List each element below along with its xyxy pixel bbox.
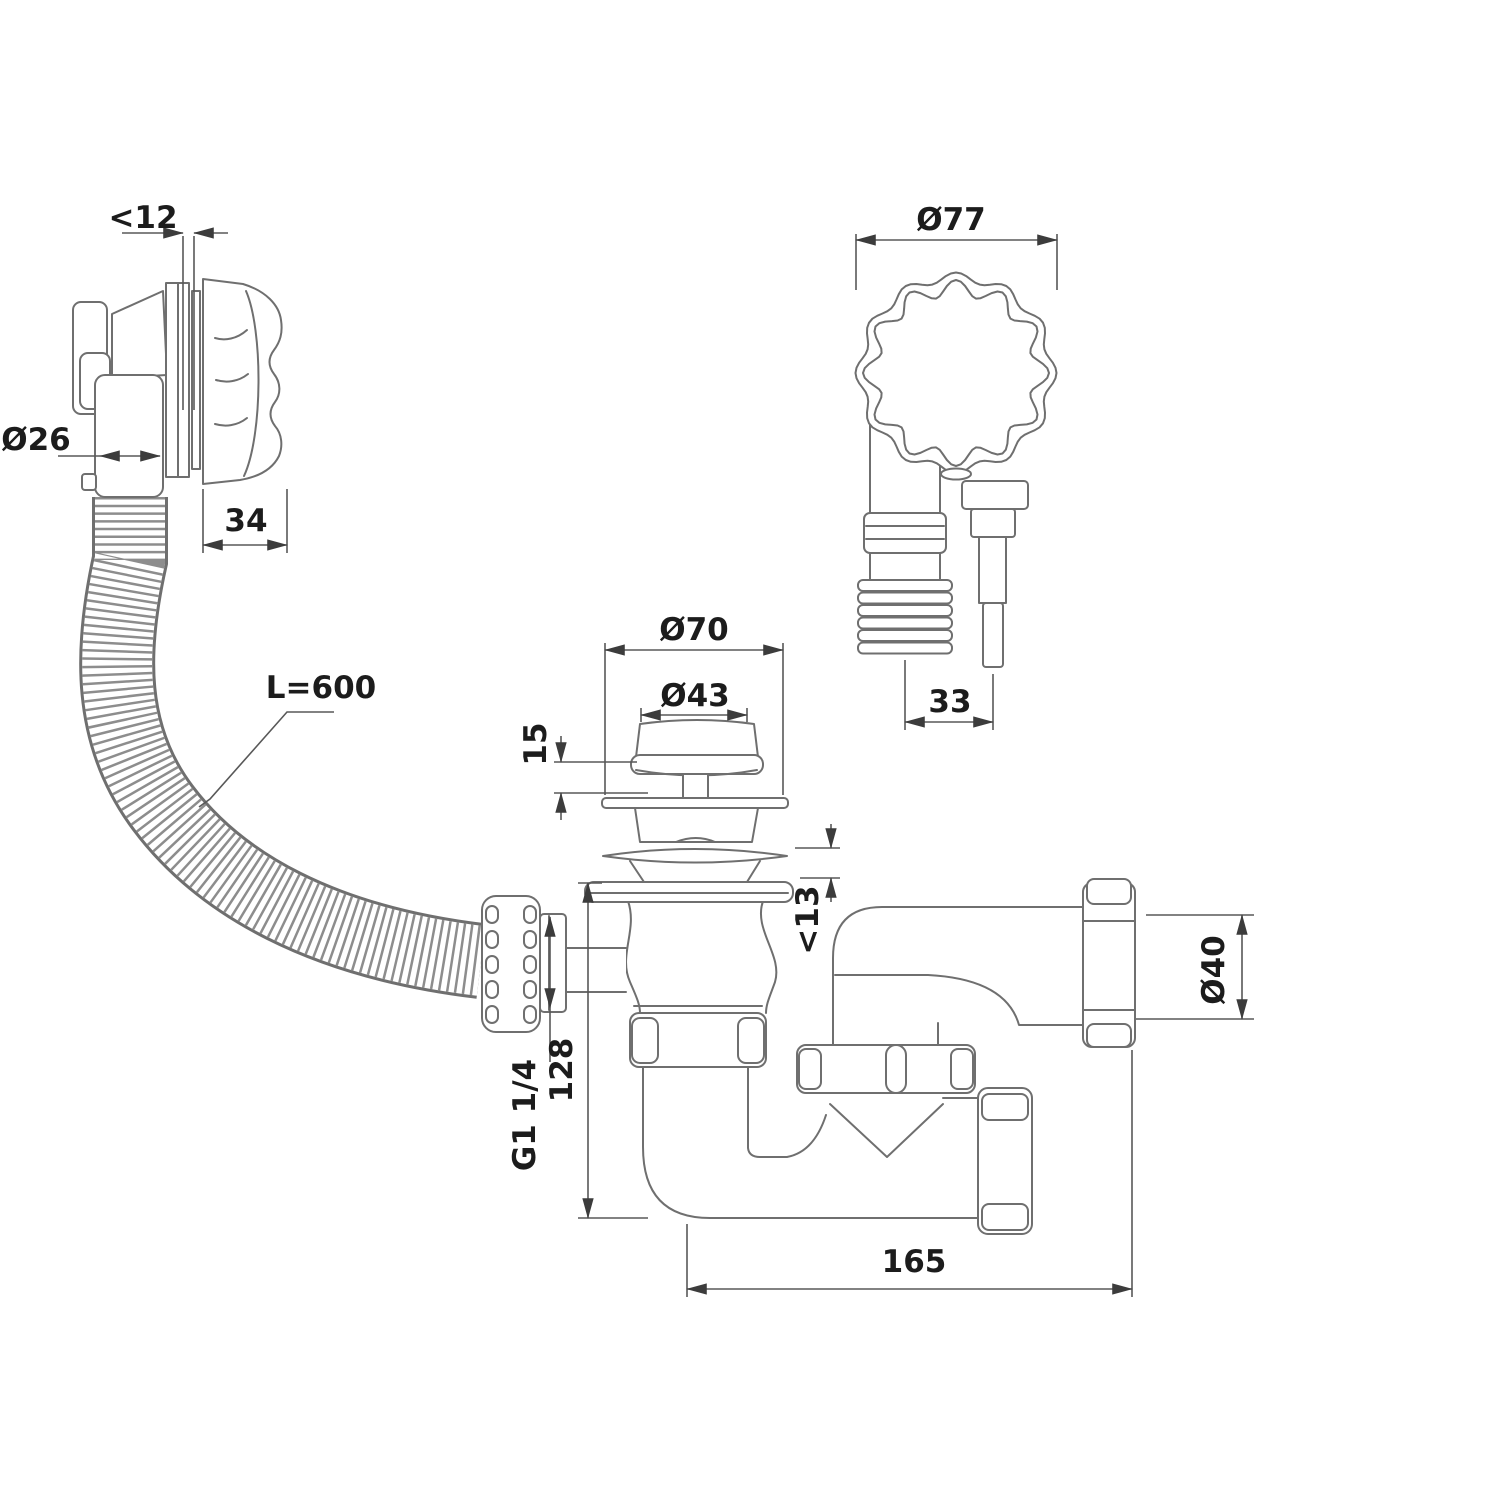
dim-label-plug-height: 15	[518, 722, 554, 765]
dim-plug-cap-diameter: Ø43	[641, 678, 747, 722]
outlet-union-nut	[978, 1088, 1032, 1234]
overflow-elbow-side-view	[73, 279, 282, 497]
drain-plug-assembly	[585, 720, 793, 902]
dim-label-flange-diameter: Ø70	[659, 612, 729, 648]
drain-top-flange	[602, 798, 788, 808]
overflow-inlet-pipe	[564, 946, 626, 992]
outlet-nut	[1083, 879, 1135, 1047]
dim-outlet-pipe-diameter: Ø40	[1136, 915, 1254, 1019]
dim-label-overflow-pipe: Ø26	[1, 422, 71, 458]
plug-cap	[636, 720, 758, 757]
pull-rod	[962, 481, 1028, 667]
overflow-knob-side-view	[203, 279, 282, 484]
dim-knob-depth: 34	[203, 489, 287, 553]
corrugated-hose	[117, 497, 481, 961]
hose-union-nut	[482, 896, 566, 1032]
overflow-tee	[833, 905, 1085, 1049]
dim-label-thread-size: G1 1/4	[507, 1059, 543, 1171]
technical-drawing-page: Ø50	[0, 0, 1500, 1500]
dim-label-hose-length: L=600	[266, 670, 376, 706]
dim-hose-length: L=600	[199, 670, 376, 807]
dim-label-outlet-pipe: Ø40	[1196, 935, 1232, 1005]
overflow-knob-thread	[858, 513, 952, 654]
dim-label-knob-depth: 34	[224, 503, 267, 539]
dim-rod-offset: 33	[905, 660, 993, 730]
drain-body-nut	[630, 1006, 766, 1067]
dim-label-rod-offset: 33	[928, 684, 971, 720]
dim-flange-clearance: <13	[790, 824, 840, 955]
threaded-collar	[540, 914, 566, 1012]
bath-drain-technical-drawing: Ø50	[0, 0, 1500, 1500]
drain-body	[564, 901, 776, 1013]
dim-label-plug-cap: Ø43	[660, 678, 730, 714]
overflow-knob-front-view	[856, 273, 1057, 668]
dim-label-knob-face: Ø77	[916, 202, 986, 238]
dim-label-overflow-gap: <12	[108, 200, 177, 236]
tee-union-nut	[797, 1045, 975, 1093]
dim-label-drain-height: 128	[544, 1038, 580, 1103]
dim-label-flange-clearance: <13	[790, 885, 826, 954]
strainer-basket	[635, 808, 758, 842]
dim-label-trap-length: 165	[882, 1244, 947, 1280]
